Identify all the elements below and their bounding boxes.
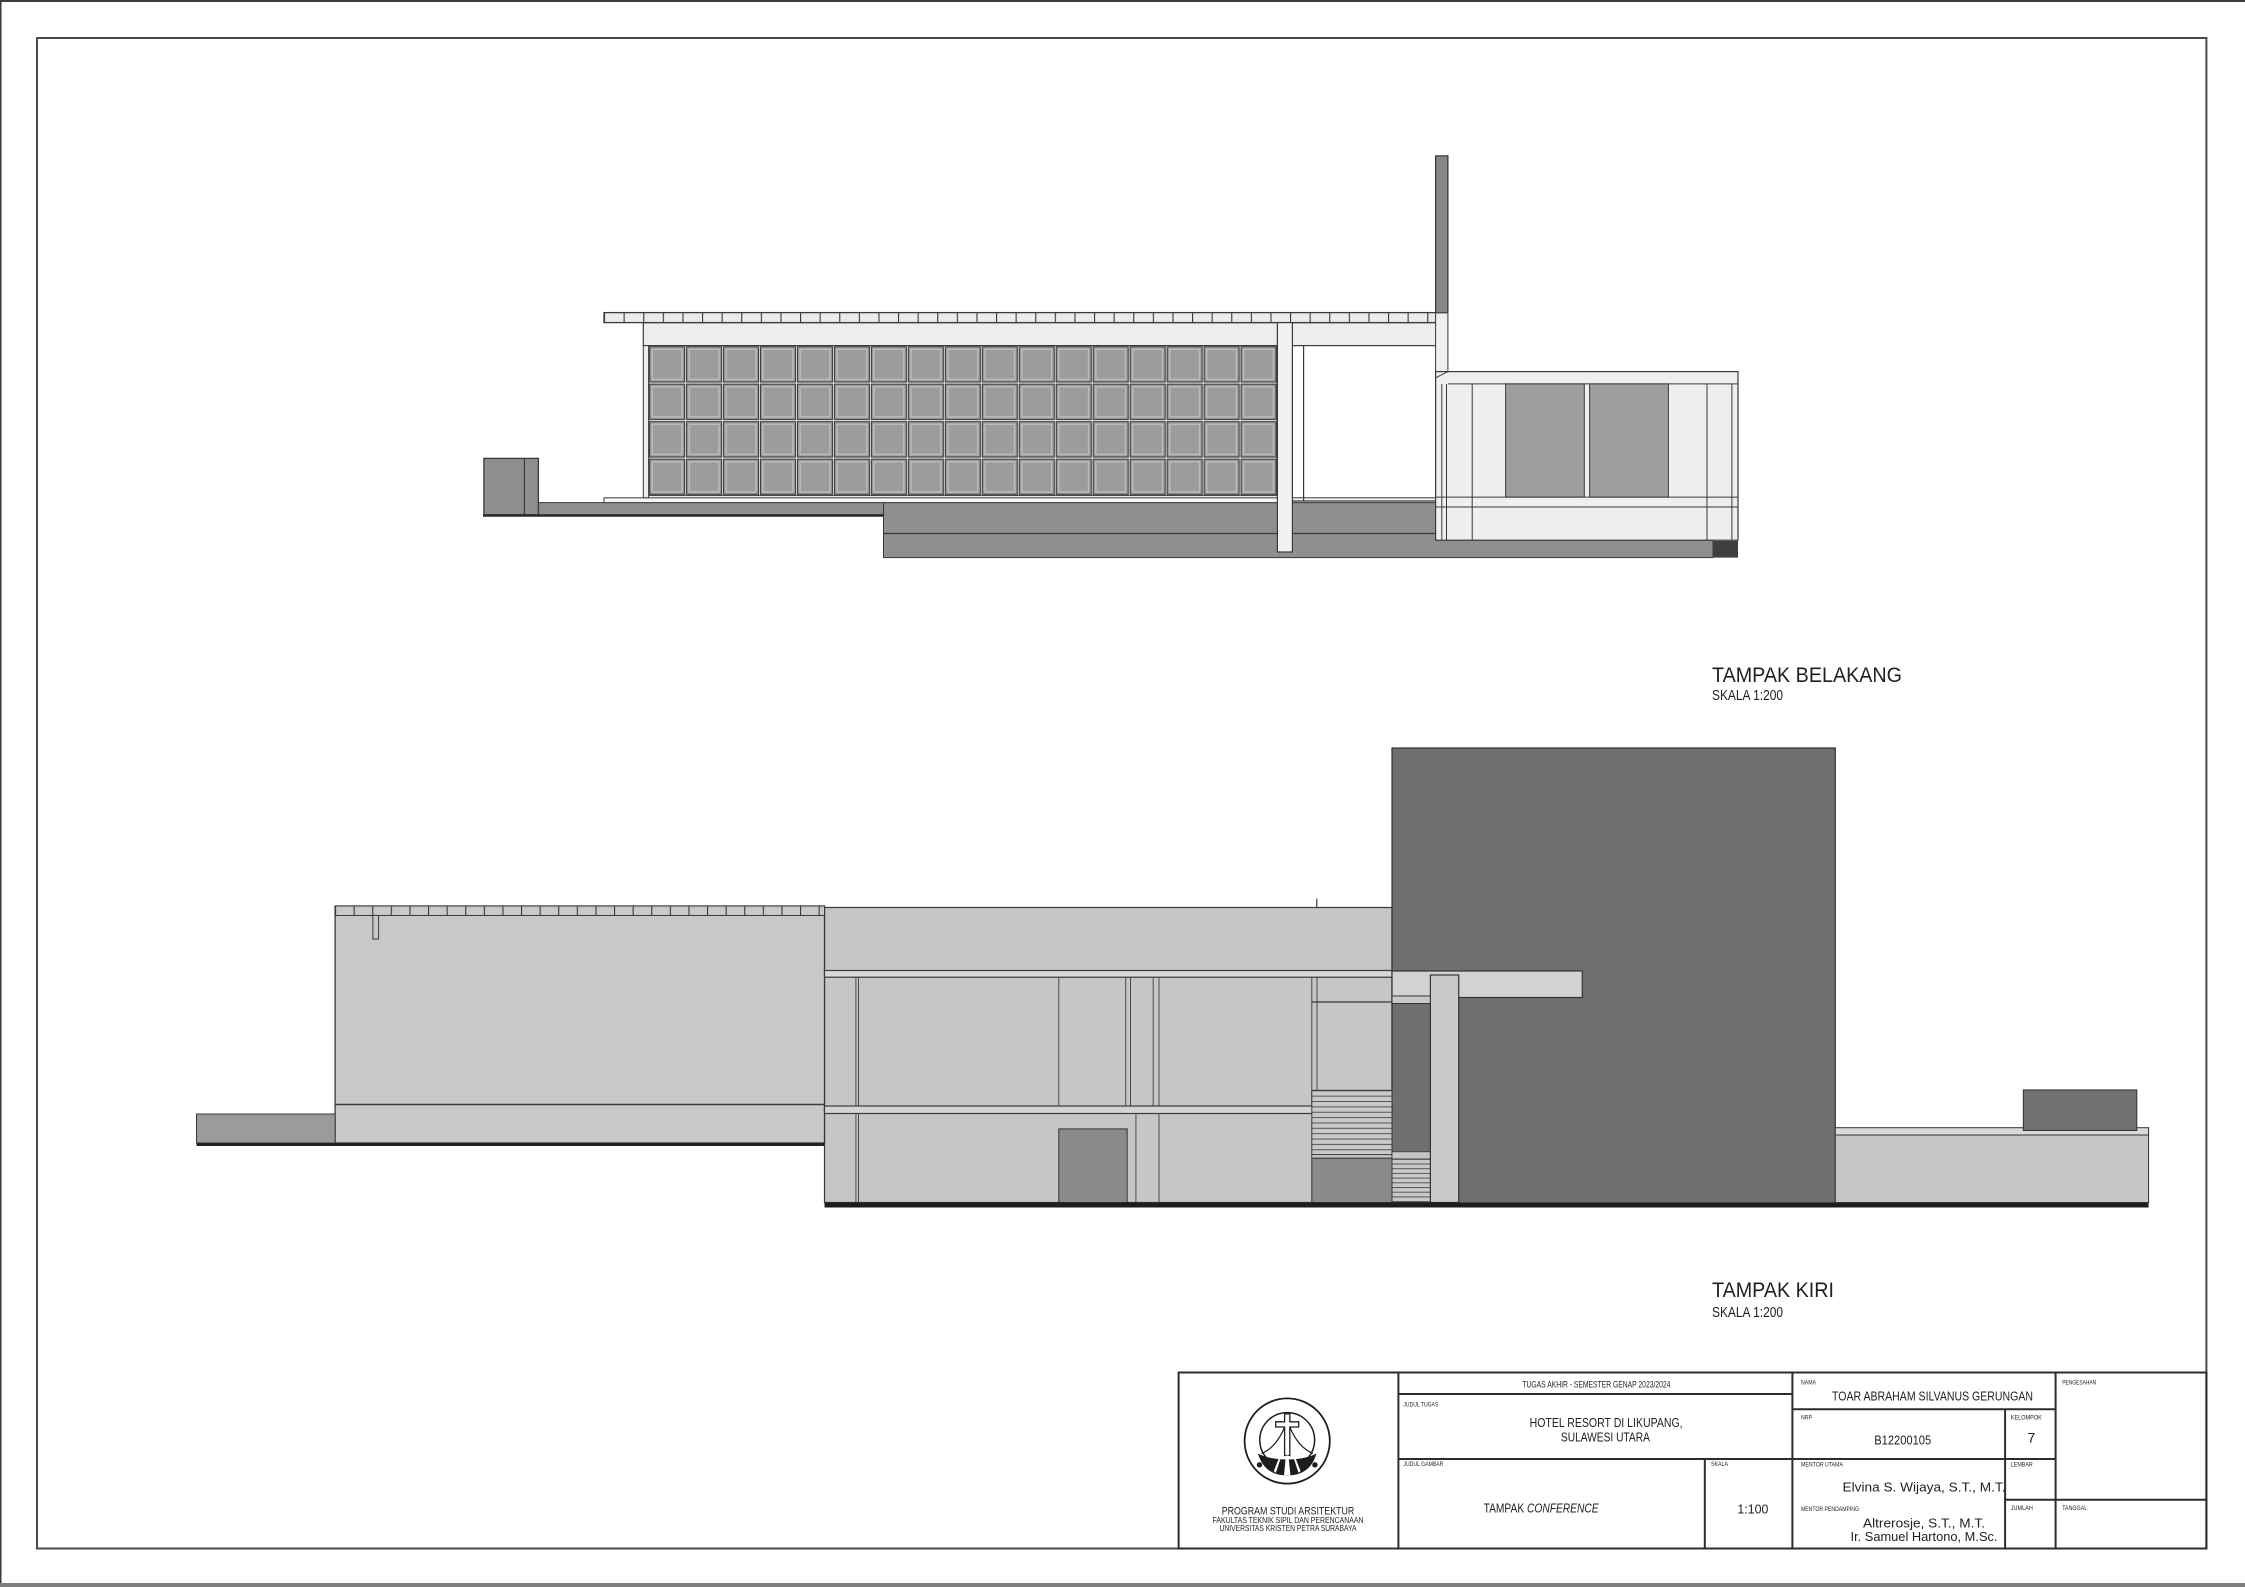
svg-text:JUDUL TUGAS: JUDUL TUGAS — [1403, 1402, 1439, 1409]
svg-text:SKALA 1:200: SKALA 1:200 — [1712, 1305, 1783, 1321]
svg-text:LEMBAR: LEMBAR — [2011, 1462, 2033, 1469]
svg-text:1:100: 1:100 — [1737, 1502, 1768, 1517]
svg-text:KELOMPOK: KELOMPOK — [2011, 1414, 2043, 1421]
svg-text:Elvina S. Wijaya, S.T., M.T.: Elvina S. Wijaya, S.T., M.T. — [1843, 1480, 2006, 1495]
svg-text:TAMPAK BELAKANG: TAMPAK BELAKANG — [1712, 664, 1902, 687]
svg-text:SKALA 1:200: SKALA 1:200 — [1712, 688, 1783, 704]
svg-text:Ir. Samuel Hartono, M.Sc.: Ir. Samuel Hartono, M.Sc. — [1851, 1529, 1998, 1544]
svg-text:TAMPAK CONFERENCE: TAMPAK CONFERENCE — [1484, 1501, 1599, 1516]
svg-text:JUMLAH: JUMLAH — [2011, 1505, 2033, 1512]
svg-text:PENGESAHAN: PENGESAHAN — [2062, 1380, 2096, 1387]
svg-text:TUGAS AKHIR - SEMESTER GENAP 2: TUGAS AKHIR - SEMESTER GENAP 2023/2024 — [1522, 1380, 1670, 1390]
svg-text:TAMPAK KIRI: TAMPAK KIRI — [1712, 1279, 1834, 1302]
svg-text:SULAWESI UTARA: SULAWESI UTARA — [1561, 1430, 1650, 1445]
svg-text:JUDUL GAMBAR: JUDUL GAMBAR — [1403, 1461, 1443, 1468]
svg-text:SKALA: SKALA — [1711, 1461, 1729, 1468]
svg-text:MENTOR UTAMA: MENTOR UTAMA — [1801, 1462, 1844, 1469]
svg-text:HOTEL RESORT DI LIKUPANG,: HOTEL RESORT DI LIKUPANG, — [1530, 1415, 1683, 1430]
svg-text:MENTOR PENDAMPING: MENTOR PENDAMPING — [1801, 1506, 1859, 1513]
svg-text:NAMA: NAMA — [1801, 1380, 1817, 1387]
svg-text:B12200105: B12200105 — [1874, 1433, 1931, 1448]
svg-text:7: 7 — [2028, 1430, 2036, 1446]
svg-text:NRP: NRP — [1801, 1414, 1812, 1421]
svg-text:TOAR ABRAHAM SILVANUS GERUNGAN: TOAR ABRAHAM SILVANUS GERUNGAN — [1832, 1389, 2033, 1404]
svg-text:UNIVERSITAS KRISTEN PETRA SURA: UNIVERSITAS KRISTEN PETRA SURABAYA — [1220, 1524, 1358, 1533]
svg-text:TANGGAL: TANGGAL — [2062, 1505, 2087, 1512]
